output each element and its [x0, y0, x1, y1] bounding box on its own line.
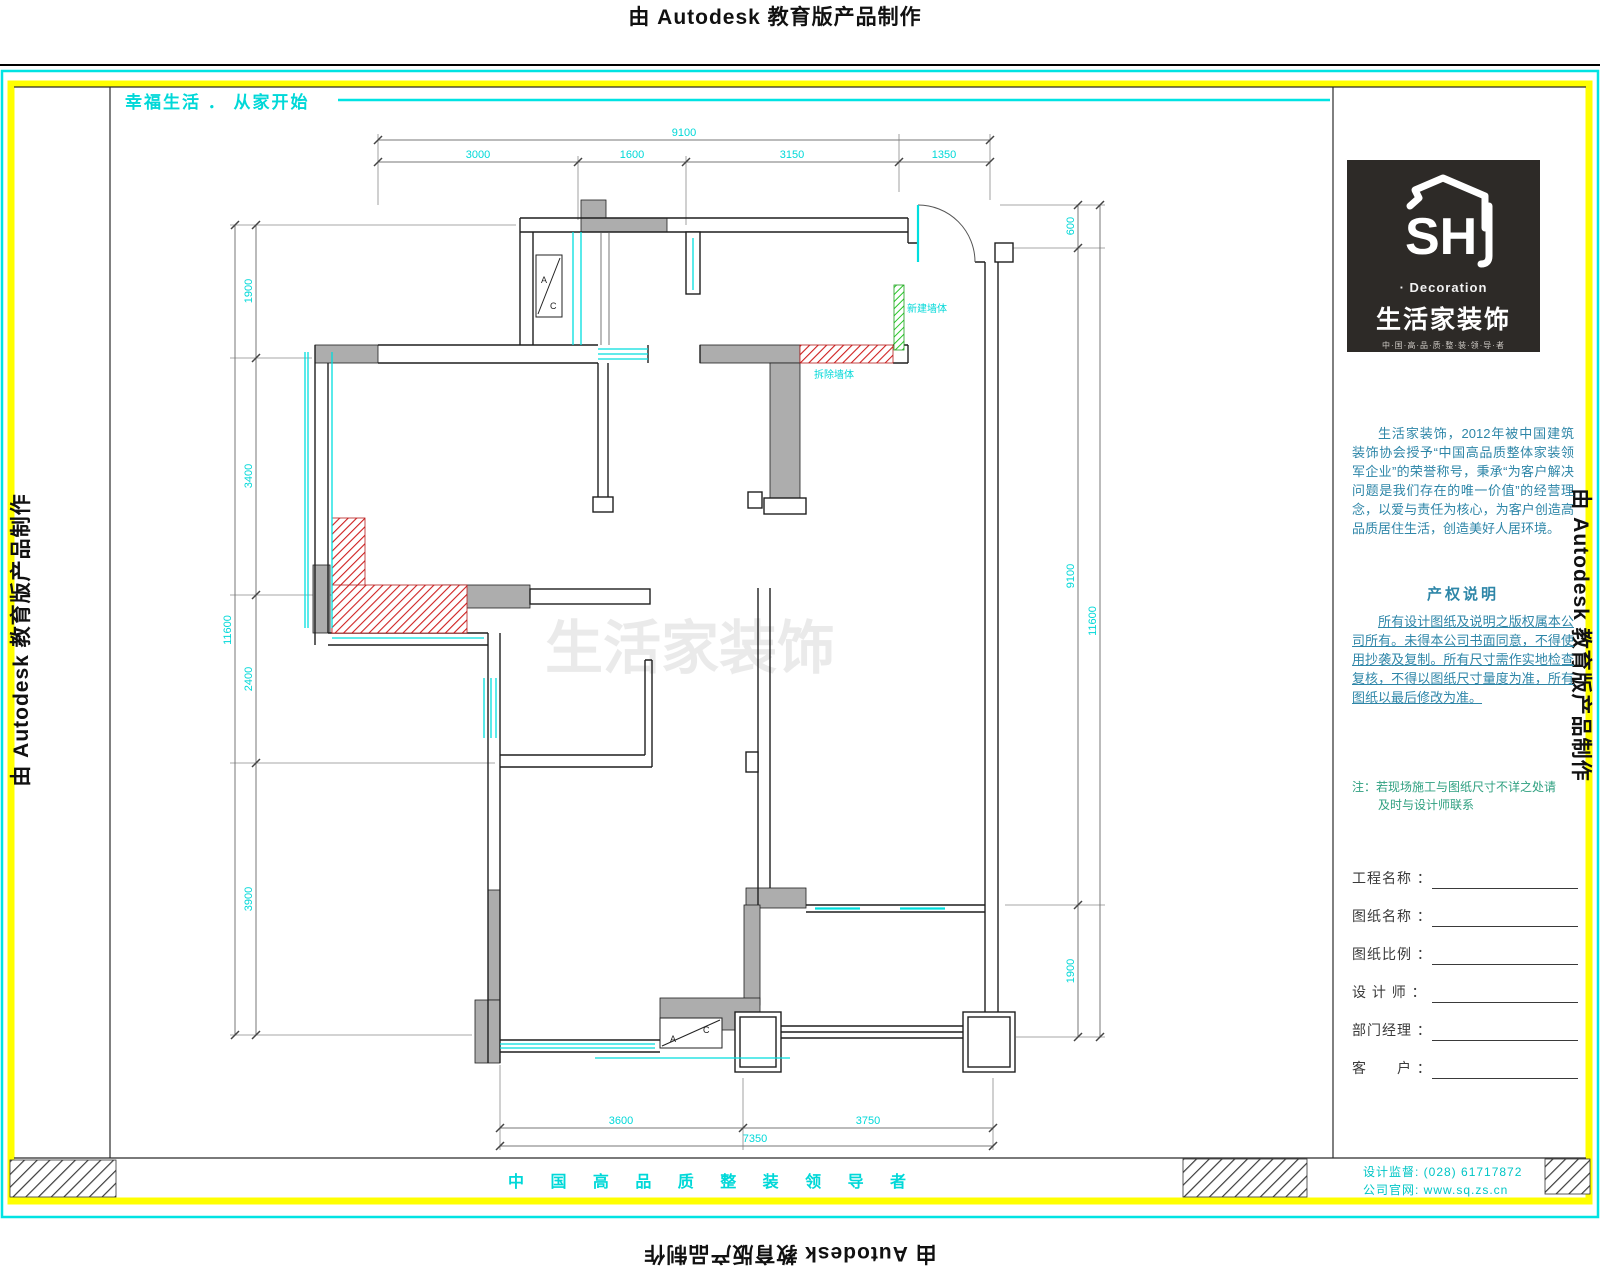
autodesk-watermark-bottom: 由 Autodesk 教育版产品制作: [643, 1240, 936, 1270]
company-intro-paragraph: 生活家装饰，2012年被中国建筑装饰协会授予“中国高品质整体家装领军企业”的荣誉…: [1352, 424, 1574, 538]
field-label: 部门经理 ：: [1352, 1022, 1432, 1038]
field-label: 图纸名称 ：: [1352, 908, 1432, 924]
field-designer: 设 计 师 ：: [1352, 982, 1580, 1012]
field-value-line[interactable]: [1432, 1002, 1578, 1003]
field-label: 设 计 师 ：: [1352, 984, 1427, 1000]
ac-letter-a: A: [670, 1034, 676, 1044]
dim-label: 1900: [243, 279, 255, 303]
ac-letter-c: C: [703, 1025, 710, 1035]
logo-brand-text: 生活家装饰: [1347, 300, 1540, 336]
footer-supervision-phone: 设计监督: (028) 61717872: [1363, 1163, 1522, 1180]
logo-decoration-text: · Decoration: [1347, 280, 1540, 295]
plan-ghost-watermark: 生活家装饰: [545, 616, 835, 681]
new-wall-label: 新建墙体: [907, 302, 947, 315]
dim-label: 11600: [1087, 606, 1099, 636]
logo-tagline: 中·国·高·品·质·整·装·领·导·者: [1347, 340, 1540, 351]
dim-label: 3600: [609, 1115, 633, 1127]
dim-label: 1350: [932, 149, 956, 161]
autodesk-watermark-left: 由 Autodesk 教育版产品制作: [5, 493, 35, 786]
company-logo: SH · Decoration 生活家装饰 中·国·高·品·质·整·装·领·导·…: [1347, 160, 1540, 352]
field-sheet-name: 图纸名称 ：: [1352, 906, 1580, 936]
site-note-line2: 及时与设计师联系: [1378, 796, 1578, 814]
field-value-line[interactable]: [1432, 926, 1578, 927]
dim-label: 11600: [222, 615, 234, 645]
dim-label: 3150: [780, 149, 804, 161]
interior-divider: [601, 232, 609, 345]
field-client: 客 户 ：: [1352, 1058, 1580, 1088]
field-label: 图纸比例 ：: [1352, 946, 1432, 962]
autodesk-watermark-top: 由 Autodesk 教育版产品制作: [628, 1, 921, 31]
ac-letter-a: A: [541, 275, 547, 285]
dim-label: 600: [1065, 217, 1077, 235]
dim-label: 7350: [743, 1133, 767, 1145]
sh-house-icon: SH: [1347, 168, 1540, 278]
field-value-line[interactable]: [1432, 1040, 1578, 1041]
dim-label: 1900: [1065, 959, 1077, 983]
footer-slogan: 中 国 高 品 质 整 装 领 导 者: [508, 1168, 917, 1192]
ac-letter-c: C: [550, 301, 557, 311]
svg-text:SH: SH: [1405, 208, 1477, 266]
footer-website[interactable]: 公司官网: www.sq.zs.cn: [1363, 1181, 1508, 1198]
field-value-line[interactable]: [1432, 964, 1578, 965]
field-label: 客 户 ：: [1352, 1060, 1432, 1076]
demolish-wall-label: 拆除墙体: [814, 368, 854, 381]
dim-label: 3900: [243, 887, 255, 911]
dim-label: 1600: [620, 149, 644, 161]
dim-label: 3750: [856, 1115, 880, 1127]
drawing-sheet: 生活家装饰: [0, 0, 1600, 1280]
copyright-title: 产权说明: [1352, 583, 1574, 604]
field-value-line[interactable]: [1432, 888, 1578, 889]
dim-label: 3000: [466, 149, 490, 161]
field-scale: 图纸比例 ：: [1352, 944, 1580, 974]
field-label: 工程名称 ：: [1352, 870, 1432, 886]
site-note-line1: 注：若现场施工与图纸尺寸不详之处请: [1352, 778, 1574, 796]
new-wall: [894, 285, 904, 350]
copyright-paragraph: 所有设计图纸及说明之版权属本公司所有。未得本公司书面同意，不得使用抄袭及复制。所…: [1352, 612, 1574, 707]
dim-label: 3400: [243, 464, 255, 488]
field-project-name: 工程名称 ：: [1352, 868, 1580, 898]
field-department-manager: 部门经理 ：: [1352, 1020, 1580, 1050]
dim-label: 9100: [672, 127, 696, 139]
dim-label: 2400: [243, 667, 255, 691]
entry-door-arc: [918, 205, 975, 262]
field-value-line[interactable]: [1432, 1078, 1578, 1079]
dim-label: 9100: [1065, 564, 1077, 588]
header-slogan: 幸福生活 ． 从家开始: [125, 88, 309, 113]
